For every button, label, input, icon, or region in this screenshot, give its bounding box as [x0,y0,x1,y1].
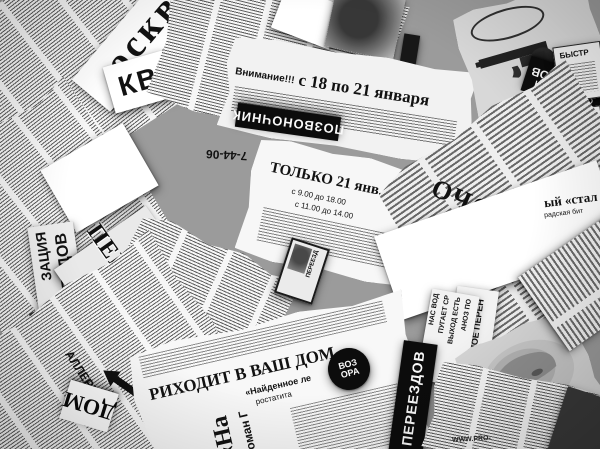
headline-pereezdov-strip: ПЕРЕЕЗДОВ [399,349,427,446]
headline-zaciya: ЗАЦИЯ [32,231,55,282]
stamp-ora: ОРА [340,367,361,381]
headline-dom: ДОМ [60,386,118,426]
fragment-anoz: АНОЗ ПО [461,299,474,332]
headline-vnimanie: Внимание!!! [234,66,295,86]
phone-upside-down: 7-44-06 [206,147,248,163]
fragment-nas-vod: НАС ВОД [428,293,440,326]
newspaper-collage-photo: осква КВ Внимание!!! с 18 по 21 января П… [0,0,600,449]
